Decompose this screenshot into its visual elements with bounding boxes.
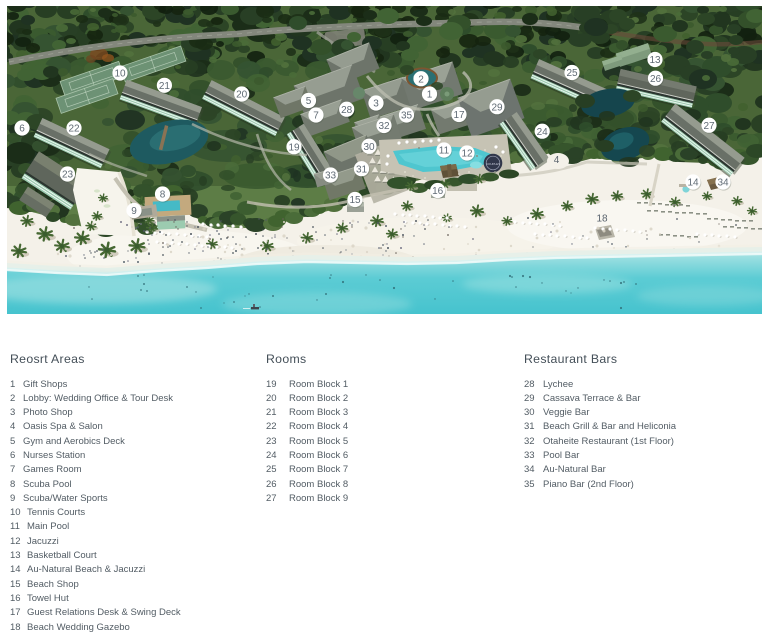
- svg-text:32: 32: [378, 121, 390, 132]
- svg-text:11: 11: [439, 146, 450, 157]
- svg-text:31: 31: [356, 164, 368, 175]
- svg-text:18: 18: [596, 214, 608, 225]
- svg-text:26: 26: [650, 74, 662, 85]
- svg-text:16: 16: [432, 186, 444, 197]
- svg-text:33: 33: [325, 171, 337, 182]
- svg-text:4: 4: [554, 155, 560, 166]
- svg-text:19: 19: [288, 142, 300, 153]
- svg-text:15: 15: [349, 195, 361, 206]
- svg-text:14: 14: [687, 178, 699, 189]
- svg-text:12: 12: [461, 149, 473, 160]
- svg-text:1: 1: [427, 90, 433, 101]
- svg-text:27: 27: [703, 121, 715, 132]
- svg-text:23: 23: [62, 170, 74, 181]
- svg-text:9: 9: [131, 206, 137, 217]
- svg-text:7: 7: [313, 111, 319, 122]
- svg-text:34: 34: [717, 178, 729, 189]
- svg-text:10: 10: [114, 69, 126, 80]
- svg-text:20: 20: [236, 90, 248, 101]
- svg-text:5: 5: [306, 96, 312, 107]
- svg-text:8: 8: [160, 190, 166, 201]
- svg-text:6: 6: [19, 124, 25, 135]
- svg-text:24: 24: [537, 127, 549, 138]
- svg-text:22: 22: [68, 124, 80, 135]
- svg-text:21: 21: [159, 81, 171, 92]
- svg-text:3: 3: [373, 99, 379, 110]
- svg-text:17: 17: [453, 110, 465, 121]
- svg-text:28: 28: [341, 105, 353, 116]
- svg-text:25: 25: [566, 68, 578, 79]
- svg-text:35: 35: [401, 111, 413, 122]
- svg-text:COUPLES: COUPLES: [486, 162, 500, 166]
- svg-text:29: 29: [491, 102, 503, 113]
- svg-text:30: 30: [363, 142, 375, 153]
- svg-text:13: 13: [649, 55, 661, 66]
- svg-text:2: 2: [418, 74, 424, 85]
